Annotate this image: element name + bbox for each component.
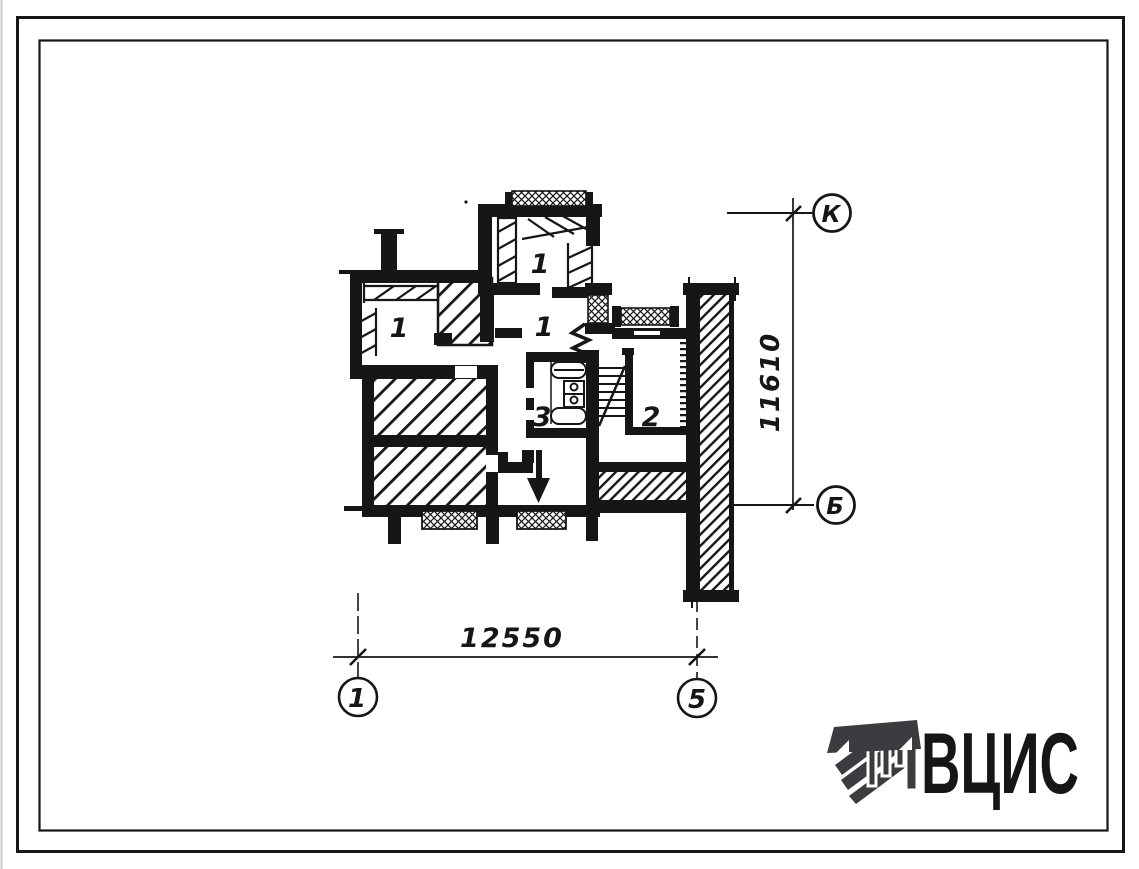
grid-marker-1-label: 1 [348,684,366,714]
hatched-room-lower [374,447,486,505]
hatched-room-upper [374,379,486,435]
porch-right [517,511,566,529]
room-label-hall: 1 [535,312,554,343]
grid-marker-5: 5 [678,679,716,717]
dimension-height-value: 11610 [756,332,786,432]
bathtub-2 [551,408,586,424]
stairs [599,366,625,426]
drawing-sheet: 1 1 1 3 2 12550 1 5 [0,0,1139,869]
striped-column-icon [827,720,921,804]
room-label-left: 1 [390,313,409,344]
adjacent-section-hatch [700,295,731,592]
logo-text: ВЦИС [921,716,1079,812]
porch-left [422,511,477,529]
bathroom-fixtures [551,362,586,424]
dimension-width-value: 12550 [460,623,564,654]
room-label-stair: 2 [642,402,661,433]
grid-marker-K-label: К [822,202,842,228]
grid-marker-B-label: Б [826,494,844,520]
balcony-room2 [621,308,670,325]
pier-crosshatch [588,295,608,323]
floor-plan: 1 1 1 3 2 [339,191,739,608]
grid-marker-5-label: 5 [688,685,706,715]
room-label-bathroom: 3 [533,402,552,433]
dimension-horizontal: 12550 1 5 [333,593,718,717]
balcony-top [512,191,586,206]
vcis-logo: ВЦИС [827,716,1079,812]
dimension-vertical: 11610 К Б [727,195,855,524]
room-label-top: 1 [531,249,550,280]
floor-plan-drawing: 1 1 1 3 2 12550 1 5 [0,0,1139,869]
grid-marker-K: К [814,195,851,232]
grid-marker-1: 1 [339,678,377,716]
grid-marker-B: Б [818,487,855,524]
